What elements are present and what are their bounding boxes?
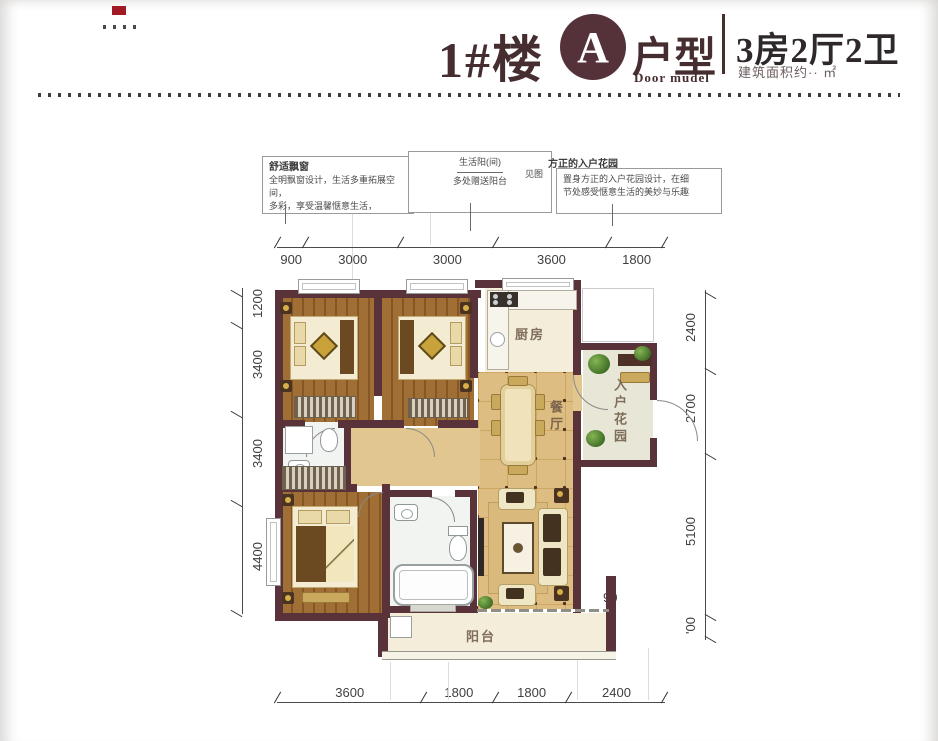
sofa-cushion	[543, 548, 561, 576]
floorplan-page: 1#楼 A 户型 Door mudel 3房2厅2卫 建筑面积约·· ㎡ 舒适飘…	[0, 0, 938, 741]
dotted-separator	[38, 93, 900, 97]
toilet	[449, 535, 467, 561]
nightstand	[282, 494, 294, 506]
dining-table	[500, 384, 536, 466]
wall	[390, 490, 432, 497]
dim-value: 3000	[338, 252, 367, 273]
plant	[634, 346, 651, 361]
balcony-floor	[385, 613, 613, 655]
nightstand	[280, 302, 292, 314]
bathtub	[393, 564, 474, 606]
tv-unit	[478, 518, 484, 576]
extension-line	[577, 660, 578, 700]
stove	[490, 292, 518, 307]
bay-window-bedroom-2	[406, 279, 468, 294]
wall	[650, 343, 657, 400]
dim-value: 3400	[250, 350, 265, 379]
wall	[573, 411, 581, 613]
dim-value: 5100	[683, 517, 698, 546]
callout-left-line1: 全明飘窗设计，生活多重拓展空间，	[269, 174, 407, 200]
dining-chair	[535, 420, 545, 436]
dining-chair	[491, 394, 501, 410]
unit-type-subtitle: Door mudel	[634, 70, 710, 86]
dimension-right: 2400 2700 5100 '00	[676, 290, 706, 640]
wall	[438, 420, 478, 428]
bed-runner	[400, 320, 414, 374]
callout-leader	[285, 204, 286, 224]
toilet	[320, 428, 338, 452]
callout-leader	[612, 204, 613, 226]
dimension-bottom: 3600 1800 1800 2400	[277, 702, 665, 728]
nightstand	[280, 380, 292, 392]
coffee-table	[502, 522, 534, 574]
unit-letter-badge: A	[560, 14, 626, 80]
wall	[606, 576, 616, 658]
dim-value: 3600	[335, 685, 364, 700]
balcony-railing	[382, 651, 616, 660]
floor-plan: 厨房 餐厅 入户花园 阳台	[270, 280, 670, 665]
dresser-bedroom-1	[294, 396, 356, 418]
callout-right-line2: 节处感受惬意生活的美妙与乐趣	[563, 186, 715, 199]
bed-runner	[340, 320, 354, 374]
wall	[382, 420, 404, 428]
header-divider	[722, 14, 725, 74]
dim-value: 900	[280, 252, 302, 273]
plant	[586, 430, 605, 447]
dining-label: 餐厅	[546, 400, 565, 434]
armchair-cushion	[506, 492, 524, 503]
building-title: 1#楼	[438, 20, 544, 92]
area-note: 建筑面积约·· ㎡	[738, 62, 837, 81]
entry-garden-label: 入户花园	[610, 378, 629, 446]
callout-right: 置身方正的入户花园设计，在细 节处感受惬意生活的美妙与乐趣	[556, 168, 722, 214]
extension-line	[390, 662, 391, 700]
callout-middle-line2: 见图	[525, 168, 543, 181]
side-table	[554, 586, 569, 601]
bay-window-master	[266, 518, 281, 586]
callout-left-line2: 多彩，享受温馨惬意生活，	[269, 200, 407, 213]
dim-value: 4400	[250, 542, 265, 571]
callout-middle: 生活阳(间) 见图 多处赠送阳台	[408, 151, 552, 213]
wall	[275, 613, 388, 621]
dim-value: '00	[683, 617, 698, 634]
balcony-sliding-door	[477, 609, 609, 612]
dining-chair	[508, 376, 528, 386]
armchair-cushion	[506, 588, 524, 599]
kitchen-label: 厨房	[515, 324, 545, 343]
header: 1#楼 A 户型 Door mudel 3房2厅2卫 建筑面积约·· ㎡	[0, 0, 938, 100]
bay-window-bedroom-1	[298, 279, 360, 294]
dim-value: 2400	[602, 685, 631, 700]
side-table	[554, 488, 569, 503]
pillow	[298, 510, 322, 524]
plant	[588, 354, 610, 374]
bed-duvet-dark	[296, 526, 326, 582]
dim-value: 1800	[517, 685, 546, 700]
plant	[478, 596, 493, 609]
kitchen-sink	[490, 332, 505, 347]
nightstand	[282, 592, 294, 604]
pillow	[294, 322, 306, 344]
roof-platform	[582, 288, 654, 342]
pillow	[326, 510, 350, 524]
dim-value: 2400	[683, 313, 698, 342]
callout-left-title: 舒适飘窗	[269, 161, 407, 174]
dim-value: 1800	[622, 252, 651, 273]
bed-duvet-light	[326, 526, 354, 582]
callout-right-line1: 置身方正的入户花园设计，在细	[563, 173, 715, 186]
wall	[581, 460, 657, 467]
unit-letter: A	[577, 22, 609, 73]
dim-value: 3400	[250, 439, 265, 468]
nightstand	[460, 380, 472, 392]
hall-wardrobe	[282, 466, 346, 490]
dining-chair	[491, 420, 501, 436]
balcony-label: 阳台	[466, 626, 496, 645]
wall	[573, 343, 581, 375]
tub-step	[410, 604, 456, 612]
shower	[285, 426, 313, 454]
dim-value: 3600	[537, 252, 566, 273]
dim-value: 1200	[250, 289, 265, 318]
dining-chair	[535, 394, 545, 410]
washing-machine	[390, 616, 412, 638]
bed-bench	[302, 592, 350, 603]
nightstand	[460, 302, 472, 314]
dimension-top: 900 3000 3000 3600 1800	[277, 247, 665, 273]
extension-line	[448, 662, 449, 700]
sofa-cushion	[543, 514, 561, 542]
pillow	[450, 322, 462, 344]
washbasin	[394, 504, 418, 521]
dim-value: 3000	[433, 252, 462, 273]
wall	[382, 484, 390, 618]
pillow	[450, 346, 462, 366]
pillow	[294, 346, 306, 366]
dining-chair	[508, 465, 528, 475]
wall	[374, 290, 382, 396]
dresser-bedroom-2	[408, 398, 468, 418]
callout-leader	[470, 203, 471, 231]
